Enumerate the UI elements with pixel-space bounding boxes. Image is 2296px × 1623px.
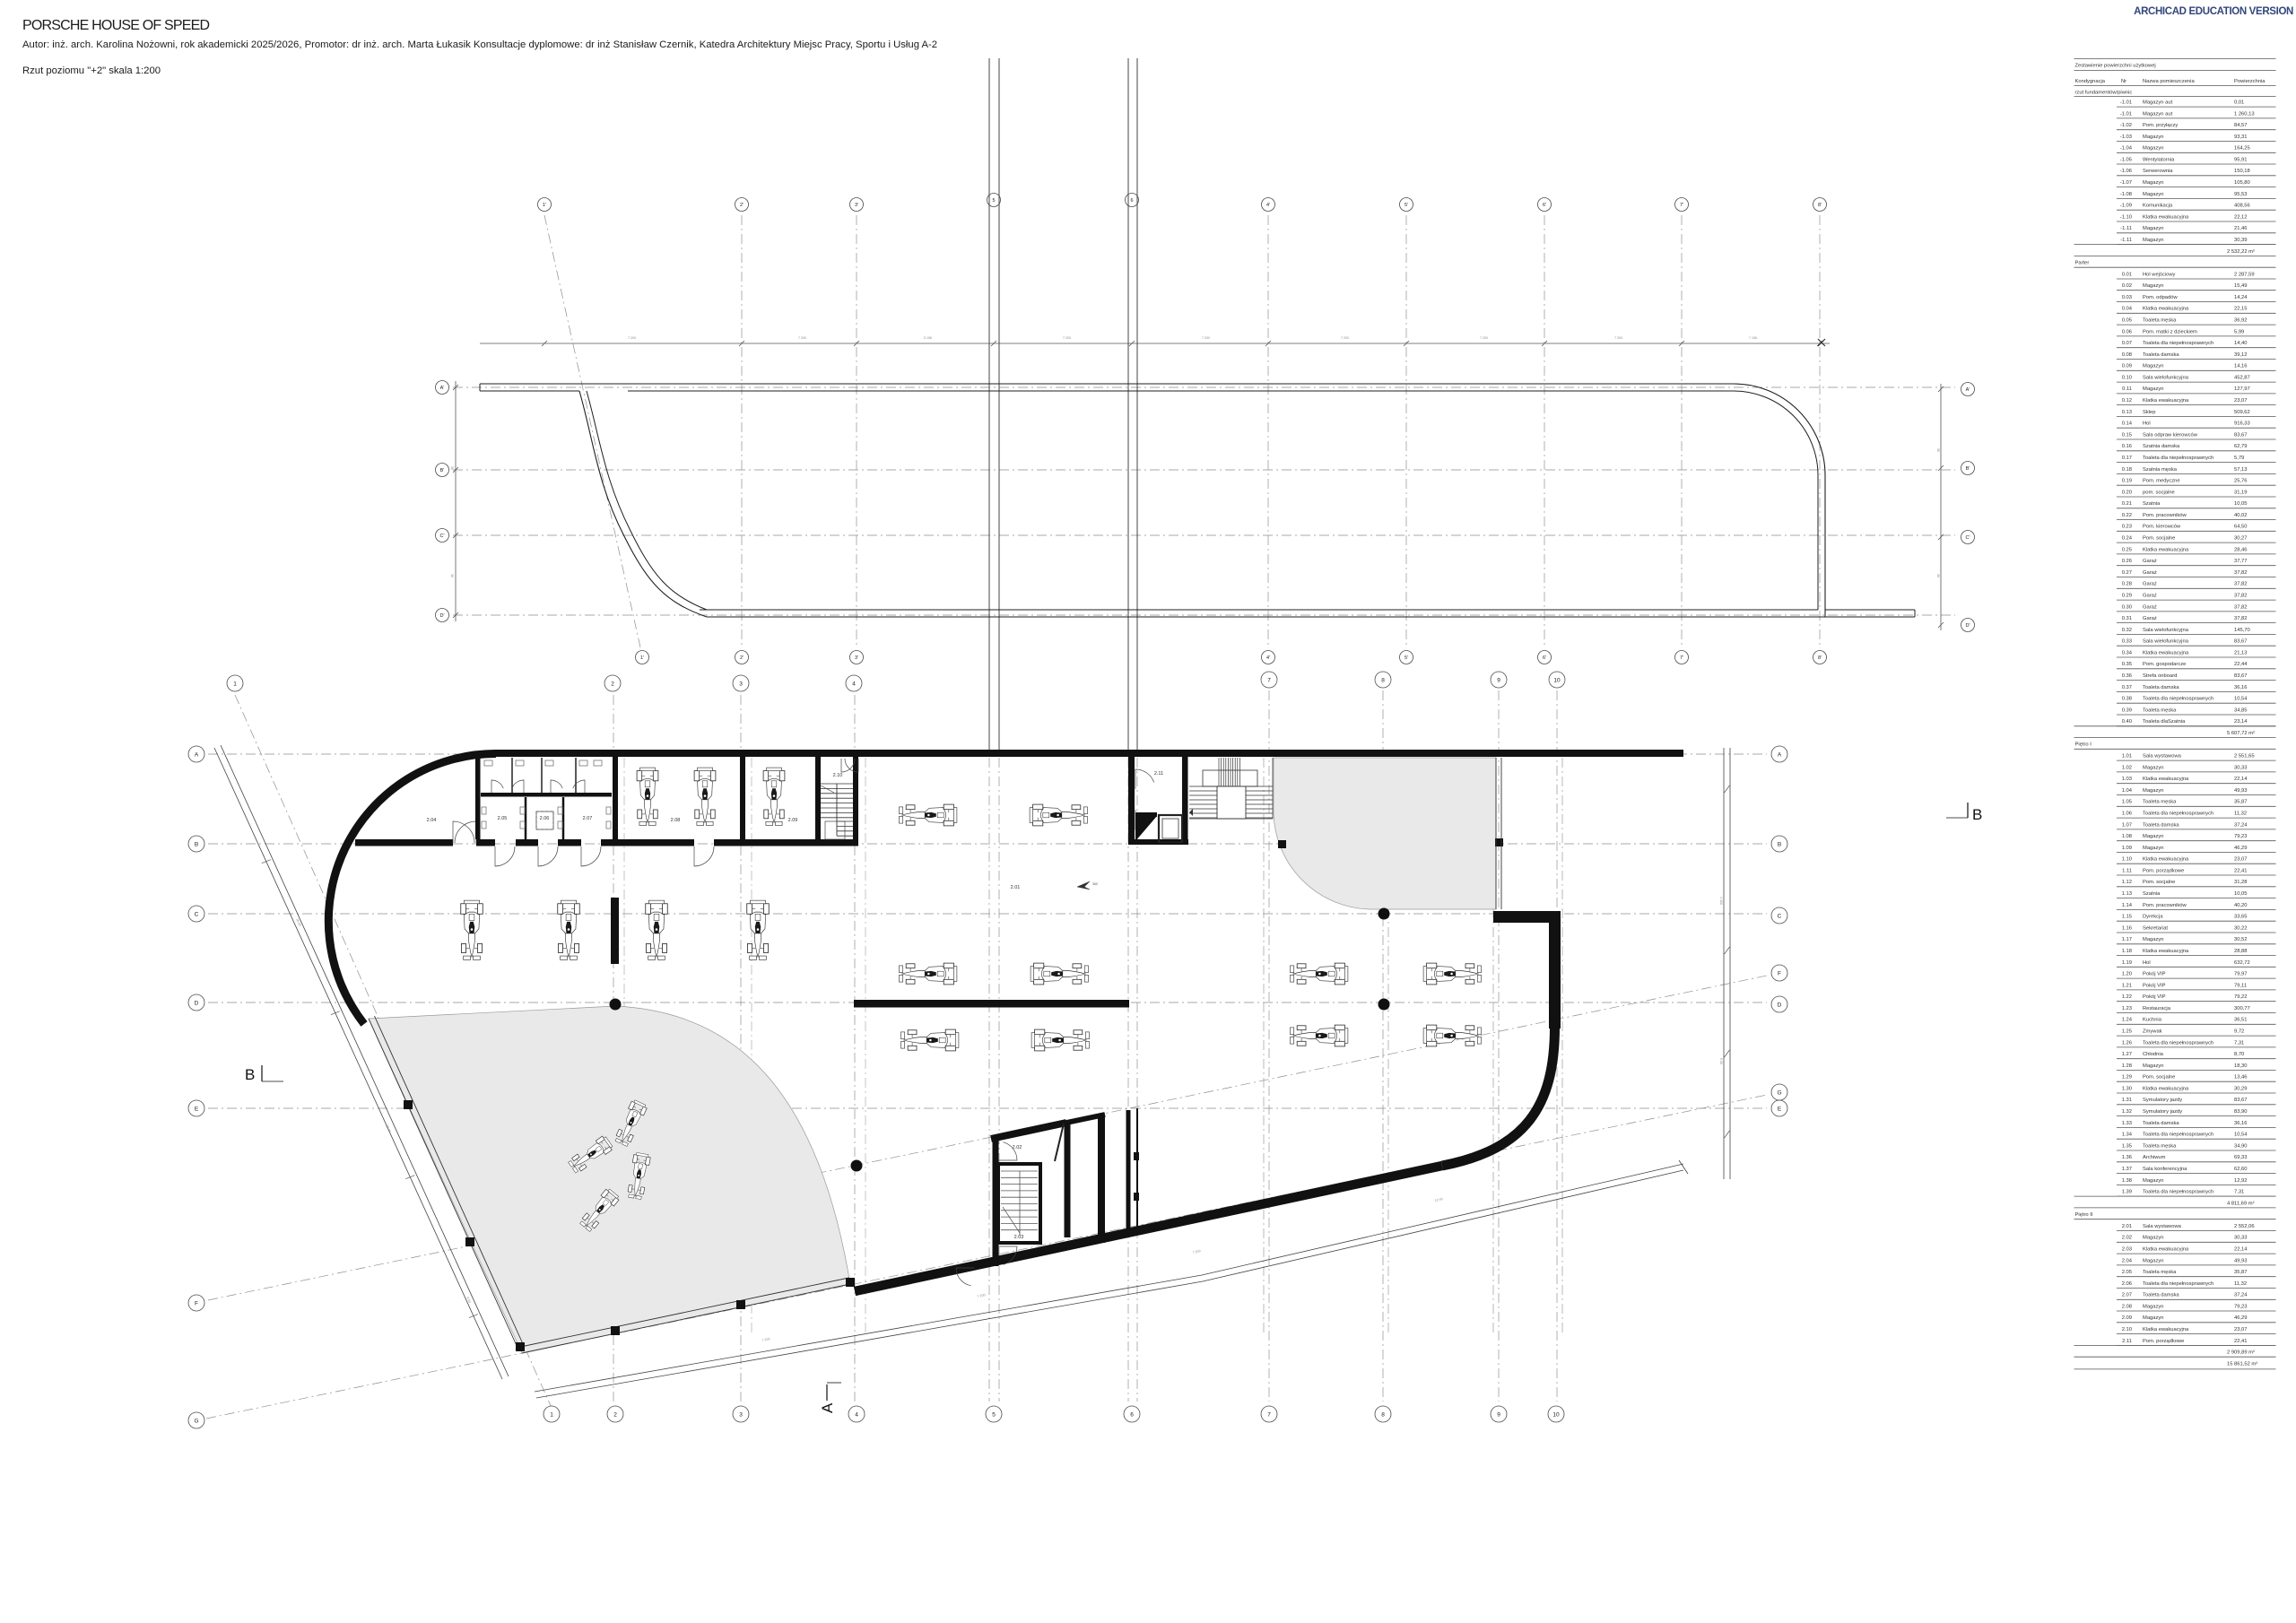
- svg-text:Pom. odpadów: Pom. odpadów: [2143, 295, 2178, 300]
- svg-text:Toaleta dla niepełnosprawnych: Toaleta dla niepełnosprawnych: [2143, 456, 2213, 461]
- svg-text:7 200: 7 200: [977, 1293, 986, 1298]
- svg-text:150,18: 150,18: [2234, 169, 2250, 174]
- svg-text:C: C: [1778, 913, 1782, 919]
- svg-text:0.31: 0.31: [2122, 616, 2132, 621]
- svg-text:33,65: 33,65: [2234, 915, 2248, 920]
- svg-text:21,46: 21,46: [2234, 226, 2248, 231]
- svg-text:9: 9: [1497, 677, 1500, 683]
- svg-text:36: 36: [450, 574, 454, 577]
- svg-text:12,92: 12,92: [2234, 1178, 2248, 1184]
- svg-text:Toaleta damska: Toaleta damska: [2143, 1121, 2179, 1126]
- svg-text:Magazyn: Magazyn: [2143, 937, 2164, 942]
- svg-text:Toaleta męska: Toaleta męska: [2143, 800, 2177, 805]
- svg-text:A': A': [1966, 387, 1970, 393]
- svg-text:PORSCHE HOUSE OF SPEED: PORSCHE HOUSE OF SPEED: [22, 18, 209, 33]
- svg-text:Dyrekcja: Dyrekcja: [2143, 915, 2163, 920]
- svg-text:Toaleta męska: Toaleta męska: [2143, 707, 2177, 713]
- svg-text:1.01: 1.01: [2122, 754, 2132, 759]
- svg-text:Klatka ewakuacyjna: Klatka ewakuacyjna: [2143, 857, 2189, 863]
- svg-text:ARCHICAD EDUCATION VERSION: ARCHICAD EDUCATION VERSION: [2134, 6, 2293, 17]
- svg-text:Serwerownia: Serwerownia: [2143, 169, 2173, 174]
- svg-text:37,82: 37,82: [2234, 582, 2248, 587]
- svg-text:C': C': [1965, 535, 1970, 541]
- svg-text:145,70: 145,70: [2234, 628, 2250, 633]
- svg-text:22,12: 22,12: [2234, 214, 2248, 220]
- svg-text:39,12: 39,12: [2234, 352, 2248, 358]
- svg-text:31,19: 31,19: [2234, 490, 2248, 495]
- svg-text:2 552,06: 2 552,06: [2234, 1224, 2255, 1229]
- svg-text:Pom. przyłączy: Pom. przyłączy: [2143, 123, 2178, 128]
- svg-text:0.34: 0.34: [2122, 650, 2133, 655]
- svg-text:1.21: 1.21: [2122, 983, 2132, 988]
- svg-text:0.16: 0.16: [2122, 444, 2132, 449]
- svg-text:2.09: 2.09: [788, 818, 798, 823]
- svg-text:30,27: 30,27: [2234, 536, 2248, 542]
- svg-text:13,46: 13,46: [2234, 1075, 2248, 1081]
- svg-text:5 156: 5 156: [924, 336, 932, 340]
- svg-text:10: 10: [1553, 677, 1561, 683]
- svg-text:Sekretariat: Sekretariat: [2143, 925, 2168, 931]
- svg-text:35,87: 35,87: [2234, 800, 2248, 805]
- svg-text:2.02: 2.02: [2122, 1236, 2132, 1241]
- svg-text:2.01: 2.01: [2122, 1224, 2132, 1229]
- svg-text:2.11: 2.11: [2122, 1339, 2132, 1344]
- svg-text:79,23: 79,23: [2234, 834, 2248, 839]
- svg-text:1.22: 1.22: [2122, 994, 2132, 1000]
- svg-text:2 551,65: 2 551,65: [2234, 754, 2255, 759]
- svg-text:0.24: 0.24: [2122, 536, 2133, 542]
- svg-text:Magazyn aut: Magazyn aut: [2143, 100, 2173, 106]
- svg-text:D': D': [439, 613, 444, 619]
- svg-text:7 200: 7 200: [798, 336, 806, 340]
- svg-text:Hol wejściowy: Hol wejściowy: [2143, 272, 2176, 277]
- svg-text:7: 7: [1267, 1411, 1271, 1418]
- svg-text:Magazyn: Magazyn: [2143, 846, 2164, 851]
- svg-text:1.12: 1.12: [2122, 880, 2132, 885]
- svg-text:Sala odpraw kierowców: Sala odpraw kierowców: [2143, 432, 2198, 438]
- svg-text:1.05: 1.05: [2122, 800, 2132, 805]
- svg-text:1.04: 1.04: [2122, 788, 2133, 794]
- svg-text:Toaleta damska: Toaleta damska: [2143, 685, 2179, 690]
- svg-text:7 200: 7 200: [761, 1337, 770, 1342]
- svg-text:0.10: 0.10: [2122, 376, 2132, 381]
- svg-text:E: E: [195, 1106, 199, 1112]
- svg-text:0.21: 0.21: [2122, 501, 2132, 507]
- svg-text:37,24: 37,24: [2234, 822, 2248, 828]
- svg-text:7,31: 7,31: [2234, 1190, 2244, 1195]
- svg-text:8: 8: [1381, 677, 1385, 683]
- svg-text:5: 5: [992, 1411, 996, 1418]
- svg-text:14,40: 14,40: [2234, 341, 2248, 346]
- svg-text:10,05: 10,05: [2234, 501, 2248, 507]
- svg-text:2.11: 2.11: [1154, 771, 1163, 777]
- svg-text:Toaleta damska: Toaleta damska: [2143, 1293, 2179, 1298]
- svg-text:1.34: 1.34: [2122, 1133, 2133, 1138]
- svg-text:6': 6': [1543, 203, 1546, 208]
- svg-text:Toaleta dlaSzatnia: Toaleta dlaSzatnia: [2143, 719, 2186, 725]
- svg-text:0.01: 0.01: [2122, 272, 2132, 277]
- svg-text:6: 6: [1130, 198, 1133, 204]
- svg-text:22,14: 22,14: [2234, 777, 2248, 782]
- svg-text:83,67: 83,67: [2234, 1098, 2248, 1103]
- svg-text:23,14: 23,14: [2234, 719, 2248, 725]
- svg-text:1.27: 1.27: [2122, 1052, 2132, 1057]
- svg-text:28 00: 28 00: [385, 1124, 391, 1133]
- svg-text:-1.07: -1.07: [2120, 180, 2132, 186]
- svg-text:916,33: 916,33: [2234, 421, 2250, 427]
- svg-text:Symulatory jazdy: Symulatory jazdy: [2143, 1098, 2182, 1103]
- svg-text:1.30: 1.30: [2122, 1086, 2132, 1091]
- svg-text:36,92: 36,92: [2234, 318, 2248, 324]
- svg-text:D: D: [195, 1000, 199, 1006]
- svg-text:Komunikacja: Komunikacja: [2143, 204, 2173, 209]
- svg-text:28,46: 28,46: [2234, 547, 2248, 552]
- svg-text:49,93: 49,93: [2234, 1258, 2248, 1263]
- svg-text:0.18: 0.18: [2122, 467, 2132, 473]
- svg-text:11,32: 11,32: [2234, 1281, 2247, 1287]
- svg-text:A: A: [195, 751, 199, 758]
- svg-text:Kuchnia: Kuchnia: [2143, 1018, 2162, 1023]
- svg-text:0.28: 0.28: [2122, 582, 2132, 587]
- svg-text:D: D: [1778, 1002, 1782, 1008]
- svg-text:B: B: [1778, 841, 1781, 847]
- svg-text:25,76: 25,76: [2234, 479, 2248, 484]
- svg-text:Piętro II: Piętro II: [2075, 1212, 2093, 1218]
- svg-text:0.04: 0.04: [2122, 307, 2133, 312]
- svg-text:10,54: 10,54: [2234, 697, 2248, 702]
- svg-text:4: 4: [855, 1411, 858, 1418]
- svg-text:62,60: 62,60: [2234, 1167, 2248, 1172]
- svg-text:Magazyn: Magazyn: [2143, 135, 2164, 140]
- svg-text:Magazyn: Magazyn: [2143, 146, 2164, 152]
- svg-text:8': 8': [1818, 655, 1822, 661]
- svg-text:0.02: 0.02: [2122, 283, 2132, 289]
- svg-text:B: B: [195, 841, 198, 847]
- svg-text:1.14: 1.14: [2122, 903, 2133, 908]
- svg-text:Parter: Parter: [2075, 261, 2090, 266]
- svg-text:Magazyn: Magazyn: [2143, 226, 2164, 231]
- svg-text:1.26: 1.26: [2122, 1040, 2132, 1046]
- svg-text:-1.06: -1.06: [2120, 169, 2132, 174]
- svg-text:3': 3': [855, 655, 858, 661]
- svg-text:57,13: 57,13: [2234, 467, 2248, 473]
- svg-text:Toaleta dla niepełnosprawnych: Toaleta dla niepełnosprawnych: [2143, 697, 2213, 702]
- svg-text:0.26: 0.26: [2122, 559, 2132, 564]
- svg-text:46,29: 46,29: [2234, 846, 2248, 851]
- svg-text:164,25: 164,25: [2234, 146, 2250, 152]
- svg-text:7': 7': [1680, 655, 1683, 661]
- svg-text:pom. socjalne: pom. socjalne: [2143, 490, 2175, 495]
- svg-text:Magazyn: Magazyn: [2143, 192, 2164, 197]
- svg-text:83,90: 83,90: [2234, 1109, 2248, 1115]
- svg-text:1.33: 1.33: [2122, 1121, 2132, 1126]
- svg-text:2': 2': [740, 203, 744, 208]
- svg-text:2.03: 2.03: [1014, 1235, 1024, 1240]
- svg-text:2.05: 2.05: [498, 816, 508, 821]
- svg-text:0.06: 0.06: [2122, 329, 2132, 334]
- svg-text:Sala konferencyjna: Sala konferencyjna: [2143, 1167, 2187, 1172]
- svg-text:23,07: 23,07: [2234, 857, 2248, 863]
- svg-text:30,33: 30,33: [2234, 1236, 2248, 1241]
- svg-text:22,44: 22,44: [2234, 662, 2248, 667]
- svg-text:40,02: 40,02: [2234, 513, 2248, 518]
- svg-text:Klatka ewakuacyjna: Klatka ewakuacyjna: [2143, 307, 2189, 312]
- svg-text:6: 6: [1130, 1411, 1134, 1418]
- svg-text:2.01: 2.01: [1011, 885, 1021, 890]
- svg-text:F: F: [1778, 970, 1781, 976]
- svg-text:62,79: 62,79: [2234, 444, 2248, 449]
- svg-text:95,91: 95,91: [2234, 157, 2248, 162]
- svg-text:Pom. pracowników: Pom. pracowników: [2143, 513, 2187, 518]
- svg-text:2 287,59: 2 287,59: [2234, 272, 2255, 277]
- svg-text:1': 1': [640, 655, 644, 661]
- svg-text:0.05: 0.05: [2122, 318, 2132, 324]
- svg-text:7 200: 7 200: [1202, 336, 1210, 340]
- svg-text:37,77: 37,77: [2234, 559, 2248, 564]
- svg-text:2.07: 2.07: [583, 816, 593, 821]
- svg-text:2.03: 2.03: [2122, 1247, 2132, 1253]
- svg-text:5,79: 5,79: [2234, 456, 2244, 461]
- svg-text:2.10: 2.10: [2122, 1327, 2132, 1332]
- svg-text:10,05: 10,05: [2234, 891, 2248, 897]
- svg-text:7 200: 7 200: [1341, 336, 1349, 340]
- svg-text:1.10: 1.10: [2122, 857, 2132, 863]
- svg-text:11,32: 11,32: [2234, 811, 2247, 817]
- svg-text:0.40: 0.40: [2122, 719, 2132, 725]
- svg-text:12 00: 12 00: [1434, 1197, 1443, 1202]
- svg-text:Powierzchnia: Powierzchnia: [2234, 79, 2266, 84]
- svg-text:2.04: 2.04: [2122, 1258, 2133, 1263]
- svg-text:10,54: 10,54: [2234, 1133, 2248, 1138]
- svg-text:46,29: 46,29: [2234, 1315, 2248, 1321]
- svg-text:Magazyn: Magazyn: [2143, 283, 2164, 289]
- svg-text:Sala wielofunkcyjna: Sala wielofunkcyjna: [2143, 376, 2189, 381]
- svg-text:7 200: 7 200: [1480, 336, 1488, 340]
- svg-text:Kondygnacja: Kondygnacja: [2075, 79, 2106, 84]
- svg-text:Hol: Hol: [2143, 421, 2151, 427]
- svg-text:Szatnia: Szatnia: [2143, 891, 2161, 897]
- svg-text:E: E: [1778, 1106, 1782, 1112]
- svg-text:Pom. socjalne: Pom. socjalne: [2143, 536, 2175, 542]
- svg-text:Klatka ewakuacyjna: Klatka ewakuacyjna: [2143, 1327, 2189, 1332]
- svg-text:Pom. porządkowe: Pom. porządkowe: [2143, 868, 2184, 873]
- svg-text:Nazwa pomieszczenia: Nazwa pomieszczenia: [2143, 79, 2195, 84]
- svg-text:7 156: 7 156: [1749, 336, 1757, 340]
- svg-text:Magazyn: Magazyn: [2143, 1258, 2164, 1263]
- svg-text:22,15: 22,15: [2234, 307, 2248, 312]
- svg-text:1.20: 1.20: [2122, 972, 2132, 977]
- svg-text:Pom. matki z dzieckiem: Pom. matki z dzieckiem: [2143, 329, 2197, 334]
- svg-text:Sklep: Sklep: [2143, 410, 2156, 415]
- svg-text:127,97: 127,97: [2234, 386, 2250, 392]
- svg-text:Wentylatornia: Wentylatornia: [2143, 157, 2175, 162]
- svg-text:0.03: 0.03: [2122, 295, 2132, 300]
- svg-text:1.08: 1.08: [2122, 834, 2132, 839]
- svg-text:22,41: 22,41: [2234, 1339, 2248, 1344]
- svg-text:0.12: 0.12: [2122, 398, 2132, 404]
- svg-text:Toaleta męska: Toaleta męska: [2143, 318, 2177, 324]
- svg-text:G: G: [194, 1418, 198, 1424]
- svg-text:Magazyn: Magazyn: [2143, 765, 2164, 770]
- svg-text:0.29: 0.29: [2122, 594, 2132, 599]
- svg-text:1.06: 1.06: [2122, 811, 2132, 817]
- svg-text:-1.10: -1.10: [2120, 214, 2132, 220]
- svg-text:Autor: inż. arch. Karolina No: Autor: inż. arch. Karolina Nożowni, rok …: [22, 39, 937, 50]
- svg-text:4 811,69 m²: 4 811,69 m²: [2227, 1201, 2255, 1206]
- svg-text:-1.11: -1.11: [2120, 226, 2132, 231]
- svg-text:Garaż: Garaż: [2143, 594, 2157, 599]
- svg-text:8': 8': [1818, 203, 1822, 208]
- svg-text:1': 1': [543, 203, 546, 208]
- svg-text:Magazyn: Magazyn: [2143, 834, 2164, 839]
- svg-text:0.14: 0.14: [2122, 421, 2133, 427]
- svg-text:4': 4': [1266, 203, 1270, 208]
- svg-text:7: 7: [1267, 677, 1271, 683]
- svg-text:79,11: 79,11: [2234, 983, 2247, 988]
- svg-text:7 200: 7 200: [1614, 336, 1622, 340]
- svg-text:1.29: 1.29: [2122, 1075, 2132, 1081]
- svg-text:Magazyn: Magazyn: [2143, 180, 2164, 186]
- svg-text:1.39: 1.39: [2122, 1190, 2132, 1195]
- svg-text:1.02: 1.02: [2122, 765, 2132, 770]
- svg-text:Klatka ewakuacyjna: Klatka ewakuacyjna: [2143, 650, 2189, 655]
- svg-text:Pom. porządkowe: Pom. porządkowe: [2143, 1339, 2184, 1344]
- svg-text:Chłodnia: Chłodnia: [2143, 1052, 2164, 1057]
- svg-text:4': 4': [1266, 655, 1270, 661]
- svg-text:105,80: 105,80: [2234, 180, 2250, 186]
- svg-text:36,16: 36,16: [2234, 1121, 2248, 1126]
- svg-text:Klatka ewakuacyjna: Klatka ewakuacyjna: [2143, 1086, 2189, 1091]
- svg-text:1.17: 1.17: [2122, 937, 2132, 942]
- svg-text:rzut fundamentów/piwnic: rzut fundamentów/piwnic: [2075, 91, 2133, 96]
- svg-text:Toaleta damska: Toaleta damska: [2143, 352, 2179, 358]
- svg-text:Magazyn aut: Magazyn aut: [2143, 111, 2173, 117]
- svg-text:31,28: 31,28: [2234, 880, 2248, 885]
- svg-text:2': 2': [740, 655, 744, 661]
- svg-text:B: B: [1972, 806, 1982, 823]
- svg-text:1.28: 1.28: [2122, 1063, 2132, 1069]
- svg-text:C': C': [439, 534, 444, 539]
- svg-text:4: 4: [852, 681, 856, 687]
- svg-text:5': 5': [1405, 203, 1408, 208]
- svg-text:1.37: 1.37: [2122, 1167, 2132, 1172]
- svg-text:93,31: 93,31: [2234, 135, 2248, 140]
- svg-text:B': B': [1966, 466, 1970, 472]
- svg-text:8: 8: [1381, 1411, 1385, 1418]
- svg-text:Garaż: Garaż: [2143, 570, 2157, 576]
- svg-text:A: A: [819, 1402, 836, 1413]
- svg-text:2.09: 2.09: [2122, 1315, 2132, 1321]
- svg-text:Toaleta dla niepełnosprawnych: Toaleta dla niepełnosprawnych: [2143, 1133, 2213, 1138]
- svg-text:2.06: 2.06: [540, 816, 550, 821]
- svg-text:-1.01: -1.01: [2120, 111, 2132, 117]
- svg-text:1.11: 1.11: [2122, 868, 2132, 873]
- svg-text:36 00: 36 00: [295, 918, 301, 927]
- svg-text:2.06: 2.06: [2122, 1281, 2132, 1287]
- svg-text:1.35: 1.35: [2122, 1143, 2132, 1149]
- svg-text:360: 360: [1092, 882, 1098, 886]
- svg-text:64,50: 64,50: [2234, 525, 2248, 530]
- svg-text:9,72: 9,72: [2234, 1029, 2244, 1035]
- svg-text:Toaleta dla niepełnosprawnych: Toaleta dla niepełnosprawnych: [2143, 341, 2213, 346]
- svg-text:509,62: 509,62: [2234, 410, 2250, 415]
- svg-text:28,88: 28,88: [2234, 949, 2248, 954]
- svg-text:0.39: 0.39: [2122, 707, 2132, 713]
- svg-text:37,82: 37,82: [2234, 594, 2248, 599]
- svg-text:7 200: 7 200: [1063, 336, 1071, 340]
- svg-text:Archiwum: Archiwum: [2143, 1155, 2166, 1160]
- svg-text:-1.09: -1.09: [2120, 204, 2132, 209]
- svg-text:15,49: 15,49: [2234, 283, 2248, 289]
- svg-text:Sala wielofunkcyjna: Sala wielofunkcyjna: [2143, 628, 2189, 633]
- svg-text:-1.03: -1.03: [2120, 135, 2132, 140]
- svg-text:C: C: [195, 911, 199, 917]
- svg-text:0,01: 0,01: [2234, 100, 2244, 106]
- svg-text:Toaleta dla niepełnosprawnych: Toaleta dla niepełnosprawnych: [2143, 1190, 2213, 1195]
- svg-text:Szatnia: Szatnia: [2143, 501, 2161, 507]
- svg-text:-1.01: -1.01: [2120, 100, 2132, 106]
- svg-text:36: 36: [1936, 574, 1940, 577]
- svg-text:Toaleta męska: Toaleta męska: [2143, 1270, 2177, 1275]
- svg-text:B': B': [440, 468, 445, 473]
- svg-text:Magazyn: Magazyn: [2143, 1063, 2164, 1069]
- svg-text:Sala wielofunkcyjna: Sala wielofunkcyjna: [2143, 639, 2189, 645]
- svg-text:Pokój VIP: Pokój VIP: [2143, 972, 2166, 977]
- svg-text:0.13: 0.13: [2122, 410, 2132, 415]
- svg-text:15 861,52 m²: 15 861,52 m²: [2227, 1361, 2257, 1367]
- svg-text:B: B: [245, 1066, 255, 1083]
- svg-text:0.36: 0.36: [2122, 673, 2132, 679]
- svg-text:0.33: 0.33: [2122, 639, 2132, 645]
- svg-text:Sala wystawowa: Sala wystawowa: [2143, 1224, 2182, 1229]
- svg-text:-1.05: -1.05: [2120, 157, 2132, 162]
- svg-text:30,39: 30,39: [2234, 238, 2248, 243]
- svg-text:D': D': [1965, 623, 1970, 629]
- svg-text:0.22: 0.22: [2122, 513, 2132, 518]
- svg-text:34,90: 34,90: [2234, 1143, 2248, 1149]
- svg-text:1.03: 1.03: [2122, 777, 2132, 782]
- svg-text:Magazyn: Magazyn: [2143, 1304, 2164, 1309]
- svg-text:Zestawienie powierzchni użytko: Zestawienie powierzchni użytkowej: [2075, 64, 2156, 69]
- svg-text:-1.04: -1.04: [2120, 146, 2133, 152]
- svg-text:7,31: 7,31: [2234, 1040, 2244, 1046]
- svg-text:2.07: 2.07: [2122, 1293, 2132, 1298]
- svg-text:Restauracja: Restauracja: [2143, 1006, 2171, 1011]
- svg-text:1.13: 1.13: [2122, 891, 2132, 897]
- svg-text:7 200: 7 200: [628, 336, 636, 340]
- svg-text:37,82: 37,82: [2234, 604, 2248, 610]
- svg-text:30,29: 30,29: [2234, 1086, 2248, 1091]
- svg-text:Magazyn: Magazyn: [2143, 1178, 2164, 1184]
- svg-text:3: 3: [739, 681, 743, 687]
- svg-text:1.18: 1.18: [2122, 949, 2132, 954]
- svg-text:1 260,13: 1 260,13: [2234, 111, 2255, 117]
- svg-text:0.11: 0.11: [2122, 386, 2132, 392]
- svg-text:37,24: 37,24: [2234, 1293, 2248, 1298]
- svg-text:1.07: 1.07: [2122, 822, 2132, 828]
- svg-text:2: 2: [611, 681, 614, 687]
- svg-text:36,16: 36,16: [2234, 685, 2248, 690]
- svg-text:1 100: 1 100: [1719, 897, 1723, 905]
- svg-text:2.05: 2.05: [2122, 1270, 2132, 1275]
- svg-text:14,24: 14,24: [2234, 295, 2248, 300]
- svg-text:Klatka ewakuacyjna: Klatka ewakuacyjna: [2143, 398, 2189, 404]
- svg-text:0.37: 0.37: [2122, 685, 2132, 690]
- svg-text:0.23: 0.23: [2122, 525, 2132, 530]
- svg-text:1.15: 1.15: [2122, 915, 2132, 920]
- svg-text:8,70: 8,70: [2234, 1052, 2244, 1057]
- svg-text:95,53: 95,53: [2234, 192, 2248, 197]
